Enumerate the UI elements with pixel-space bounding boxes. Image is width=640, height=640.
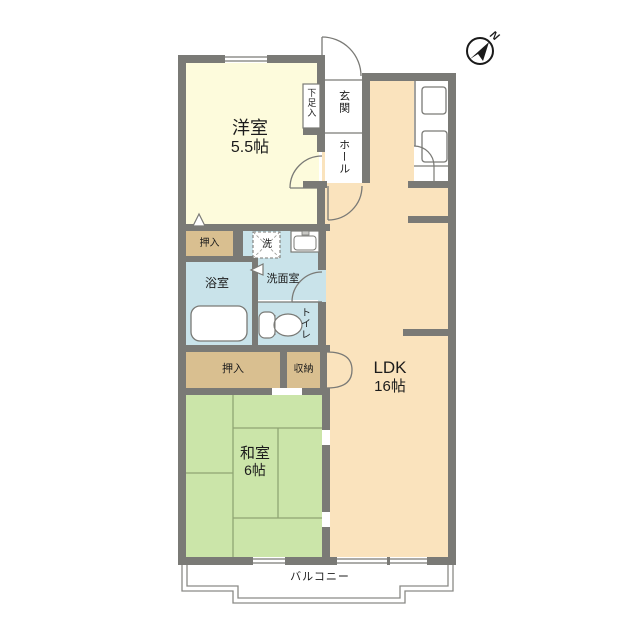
bathtub <box>191 306 247 341</box>
fusuma-gap-1 <box>322 430 330 445</box>
balcony-label: バルコニー <box>265 571 375 584</box>
kitchen-sink <box>422 87 446 114</box>
japanese-room-top-opening <box>272 388 302 395</box>
ldk-balcony-window-1 <box>337 557 387 565</box>
fusuma-gap-2 <box>322 512 330 527</box>
kitchen-stove <box>422 131 447 162</box>
ldk-balcony-window-2 <box>390 557 427 565</box>
closet-lower-label: 押入 <box>203 363 263 376</box>
western-room-size: 5.5帖 <box>200 139 300 157</box>
hall-label: ホール <box>337 139 350 175</box>
western-room-label: 洋室 5.5帖 <box>200 118 300 157</box>
kitchen-counter <box>414 81 448 186</box>
japanese-room-balcony-window <box>253 557 285 565</box>
toilet-label: トイレ <box>298 307 310 340</box>
ldk-size: 16帖 <box>348 378 432 395</box>
entrance-door <box>322 37 362 80</box>
compass <box>467 38 493 64</box>
ldk-name: LDK <box>348 358 432 378</box>
japanese-room-name: 和室 <box>223 445 287 462</box>
western-room-name: 洋室 <box>200 118 300 139</box>
western-room-floor-ext <box>303 130 319 224</box>
entrance-label: 玄関 <box>337 90 350 114</box>
japanese-room-label: 和室 6帖 <box>223 445 287 478</box>
shoe-cabinet-label: 下足入 <box>306 88 316 118</box>
japanese-room-size: 6帖 <box>223 462 287 478</box>
compass-needle <box>470 42 489 61</box>
western-room-window <box>225 55 267 63</box>
washroom-door-opening <box>318 270 326 302</box>
ldk-label: LDK 16帖 <box>348 358 432 395</box>
closet-upper-label: 押入 <box>187 238 232 250</box>
bathroom-label: 浴室 <box>190 277 244 291</box>
washroom-label: 洗面室 <box>250 273 316 286</box>
washing-machine-label: 洗 <box>255 239 279 251</box>
floor-plan-drawing <box>0 0 640 640</box>
storage-label: 収納 <box>287 364 320 376</box>
floor-plan: 洋室 5.5帖 下足入 玄関 ホール 押入 洗 洗面室 浴室 トイレ 押入 収納… <box>0 0 640 640</box>
toilet-fixture <box>259 312 302 338</box>
washbasin <box>291 231 319 252</box>
